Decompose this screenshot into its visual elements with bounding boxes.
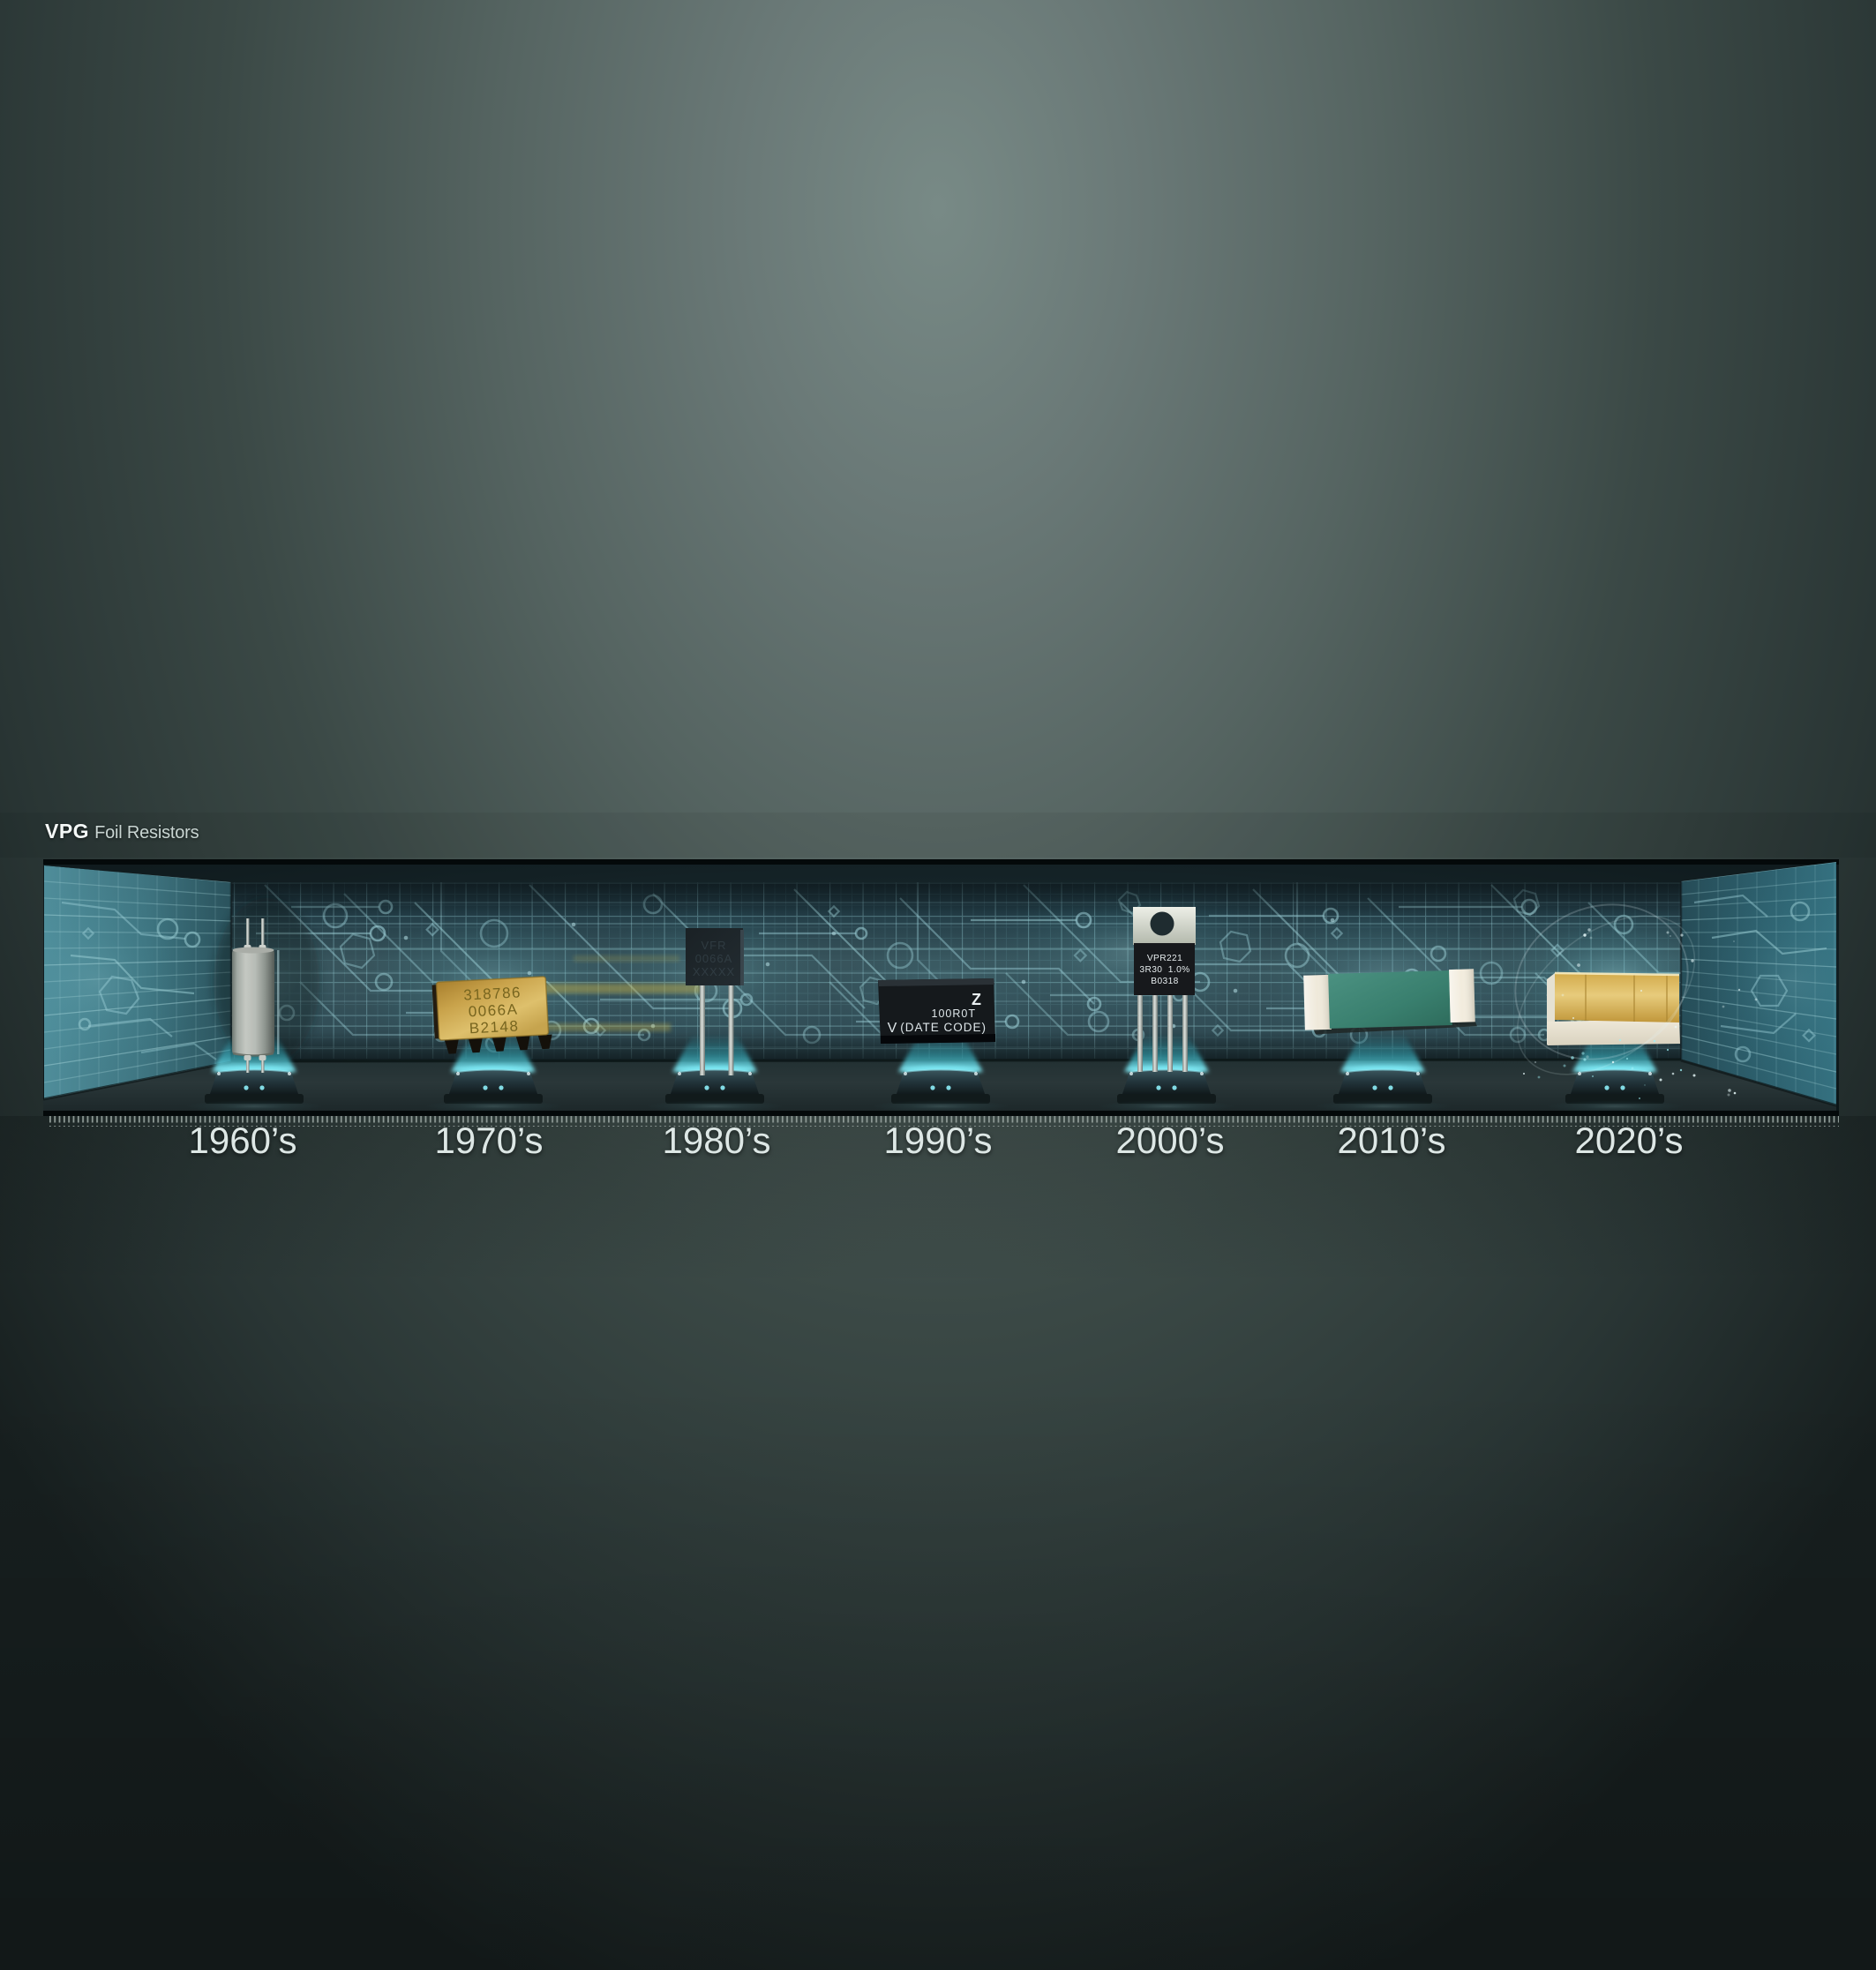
svg-text:3R30 1.0%: 3R30 1.0% (1139, 965, 1189, 975)
svg-text:(DATE CODE): (DATE CODE) (900, 1021, 987, 1034)
svg-text:VPR221: VPR221 (1147, 954, 1182, 963)
svg-text:V: V (888, 1021, 897, 1036)
svg-text:100R0T: 100R0T (932, 1007, 976, 1020)
svg-text:B0318: B0318 (1151, 977, 1178, 986)
svg-text:XXXXX: XXXXX (693, 965, 735, 978)
svg-text:VFR: VFR (702, 939, 727, 952)
svg-text:B2148: B2148 (469, 1017, 520, 1037)
svg-text:0066A: 0066A (695, 952, 733, 965)
svg-text:Z: Z (972, 991, 981, 1008)
